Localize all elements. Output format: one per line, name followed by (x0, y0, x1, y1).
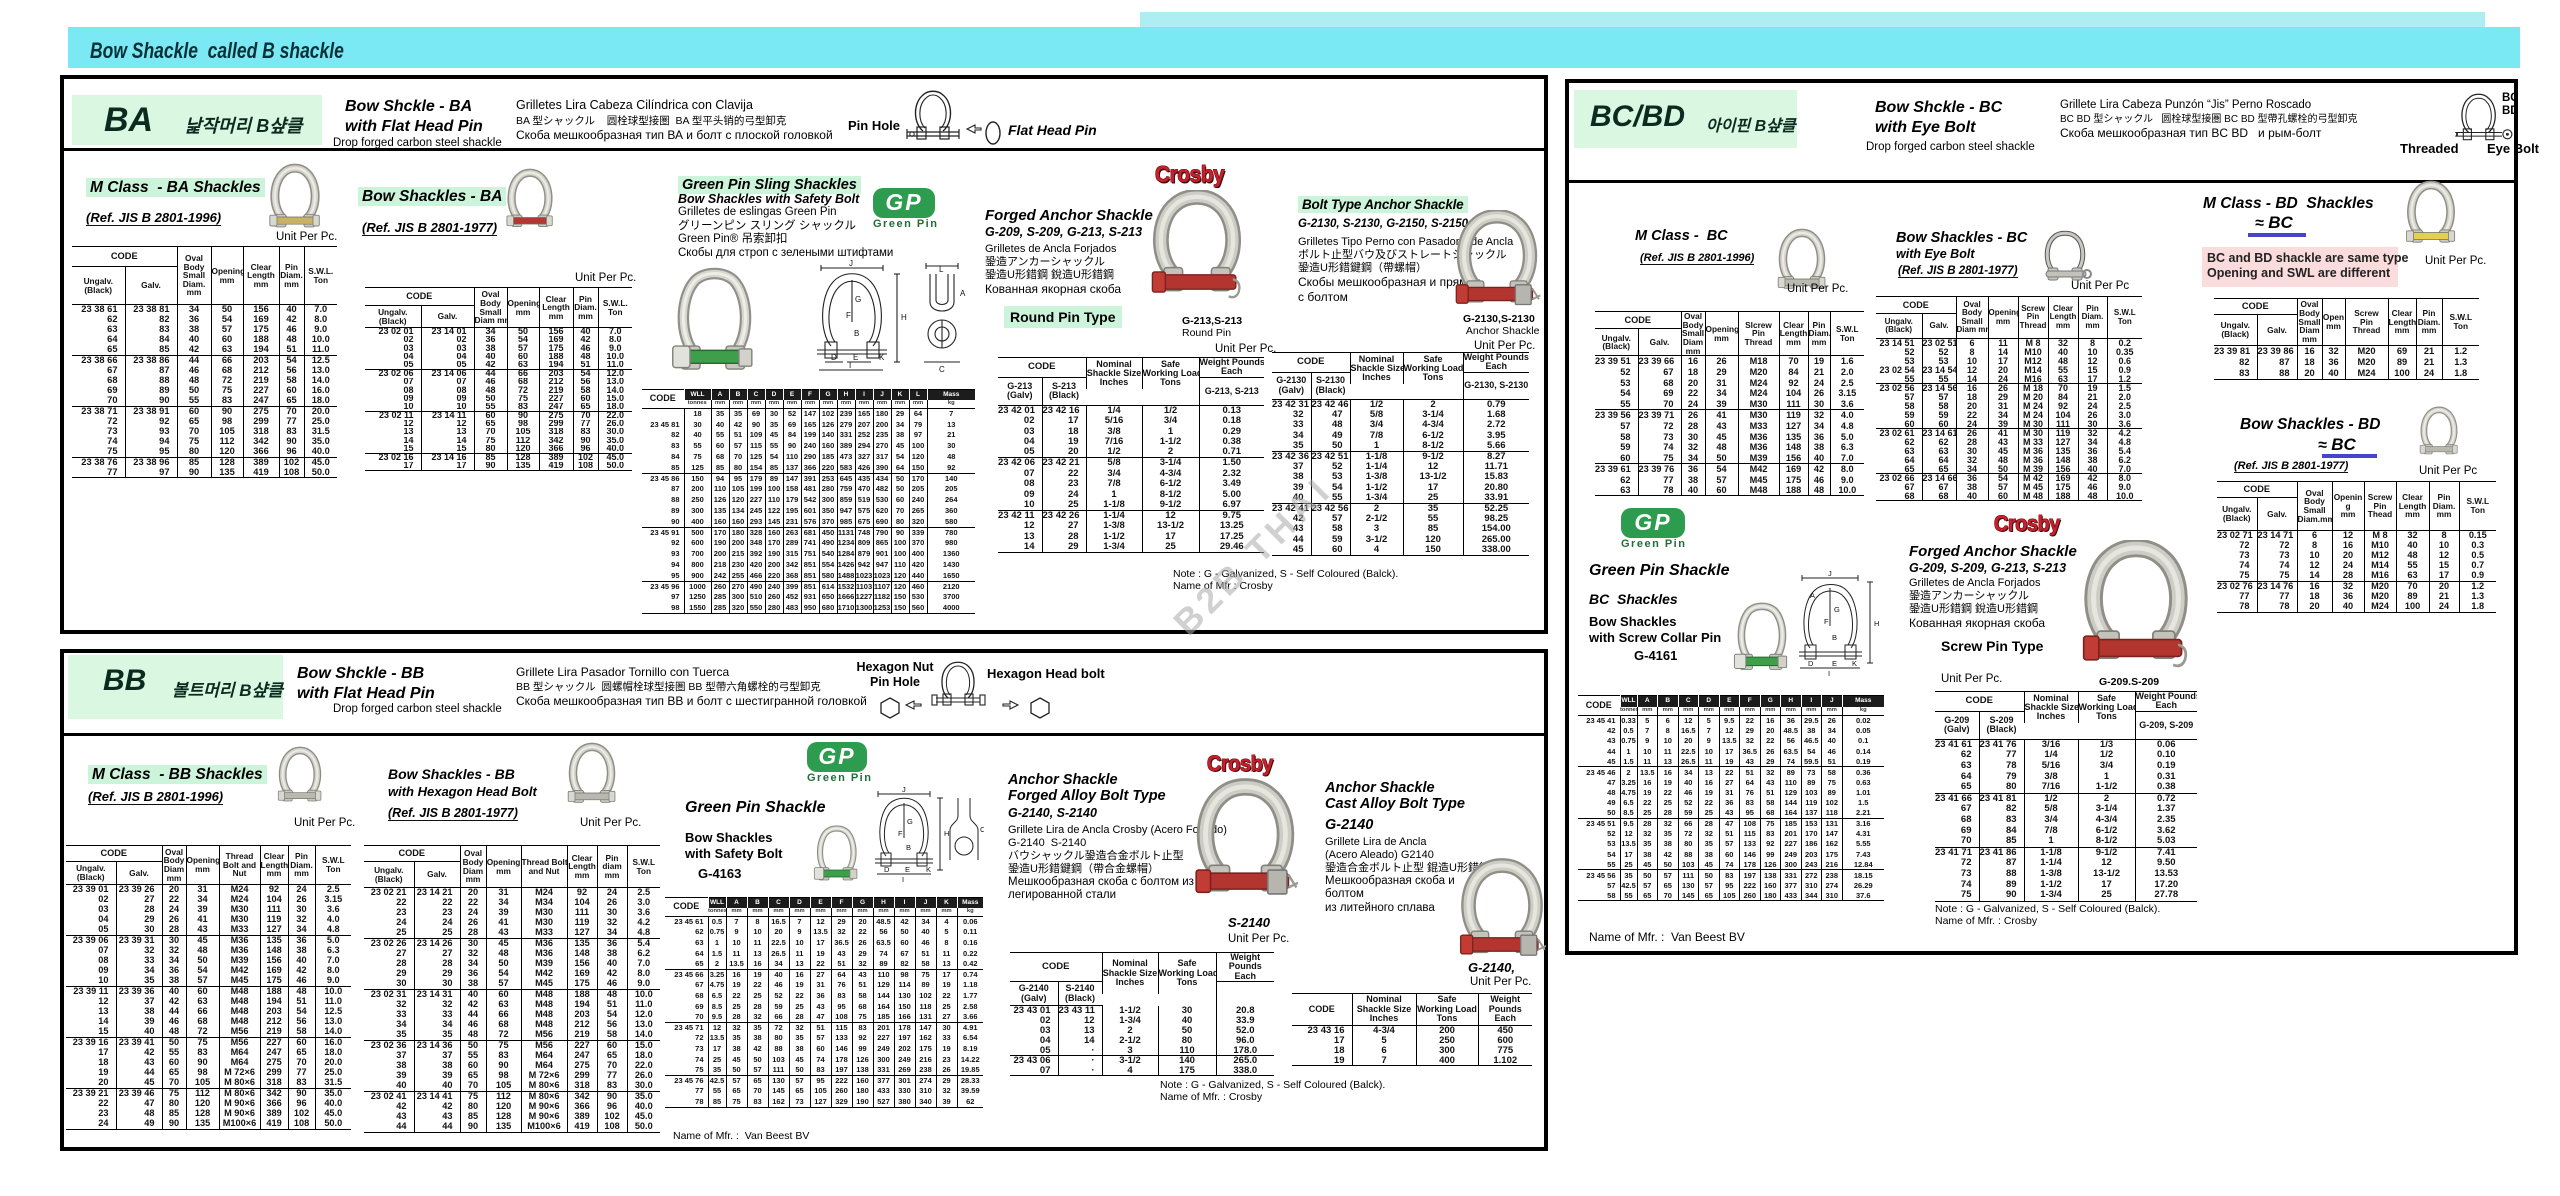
svg-text:G: G (907, 817, 913, 826)
svg-text:A: A (1810, 591, 1815, 600)
svg-text:H: H (944, 829, 949, 838)
svg-text:D: D (884, 865, 890, 874)
svg-text:I: I (1828, 669, 1830, 678)
svg-text:F: F (1824, 617, 1829, 626)
svg-text:C: C (939, 365, 945, 374)
svg-text:H: H (1874, 619, 1879, 628)
svg-text:G: G (855, 295, 861, 304)
svg-text:B: B (906, 843, 911, 852)
svg-text:E: E (1832, 659, 1837, 668)
svg-text:D: D (1808, 659, 1814, 668)
svg-text:I: I (849, 361, 851, 370)
svg-text:K: K (926, 865, 931, 874)
svg-text:F: F (898, 829, 903, 838)
svg-text:E: E (905, 865, 910, 874)
svg-text:B: B (854, 329, 859, 338)
svg-text:F: F (846, 311, 851, 320)
svg-text:E: E (853, 353, 858, 362)
svg-text:J: J (849, 259, 853, 268)
svg-text:K: K (1852, 659, 1857, 668)
svg-text:D: D (831, 353, 837, 362)
svg-text:C: C (980, 825, 984, 834)
svg-text:K: K (879, 353, 885, 362)
svg-text:A: A (960, 289, 966, 298)
svg-text:J: J (1828, 569, 1832, 578)
svg-text:G: G (1834, 605, 1840, 614)
svg-text:L: L (939, 265, 944, 274)
svg-text:I: I (902, 875, 904, 884)
svg-text:H: H (901, 313, 907, 322)
svg-text:J: J (902, 786, 906, 794)
svg-text:B: B (1832, 633, 1837, 642)
